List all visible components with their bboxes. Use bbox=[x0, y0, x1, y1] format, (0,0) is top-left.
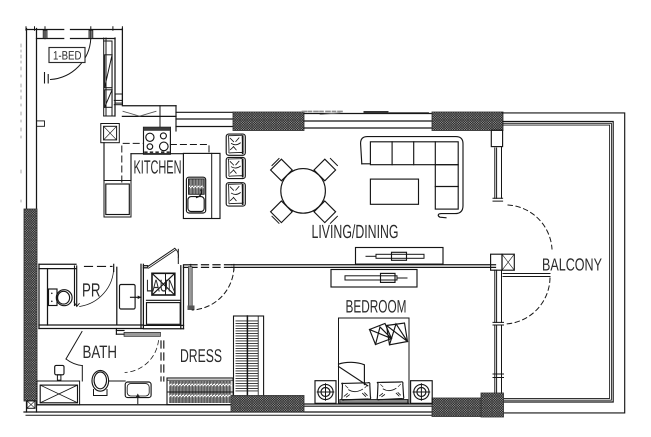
svg-text:BALCONY: BALCONY bbox=[542, 255, 602, 275]
svg-text:LIVING/DINING: LIVING/DINING bbox=[312, 222, 399, 243]
svg-text:BEDROOM: BEDROOM bbox=[346, 297, 407, 317]
svg-text:PR: PR bbox=[82, 281, 101, 302]
svg-text:LAUN: LAUN bbox=[146, 277, 176, 296]
svg-text:BATH: BATH bbox=[83, 342, 118, 362]
svg-text:1-BED: 1-BED bbox=[53, 49, 82, 63]
svg-text:KITCHEN: KITCHEN bbox=[134, 158, 182, 179]
svg-text:DRESS: DRESS bbox=[180, 345, 222, 366]
